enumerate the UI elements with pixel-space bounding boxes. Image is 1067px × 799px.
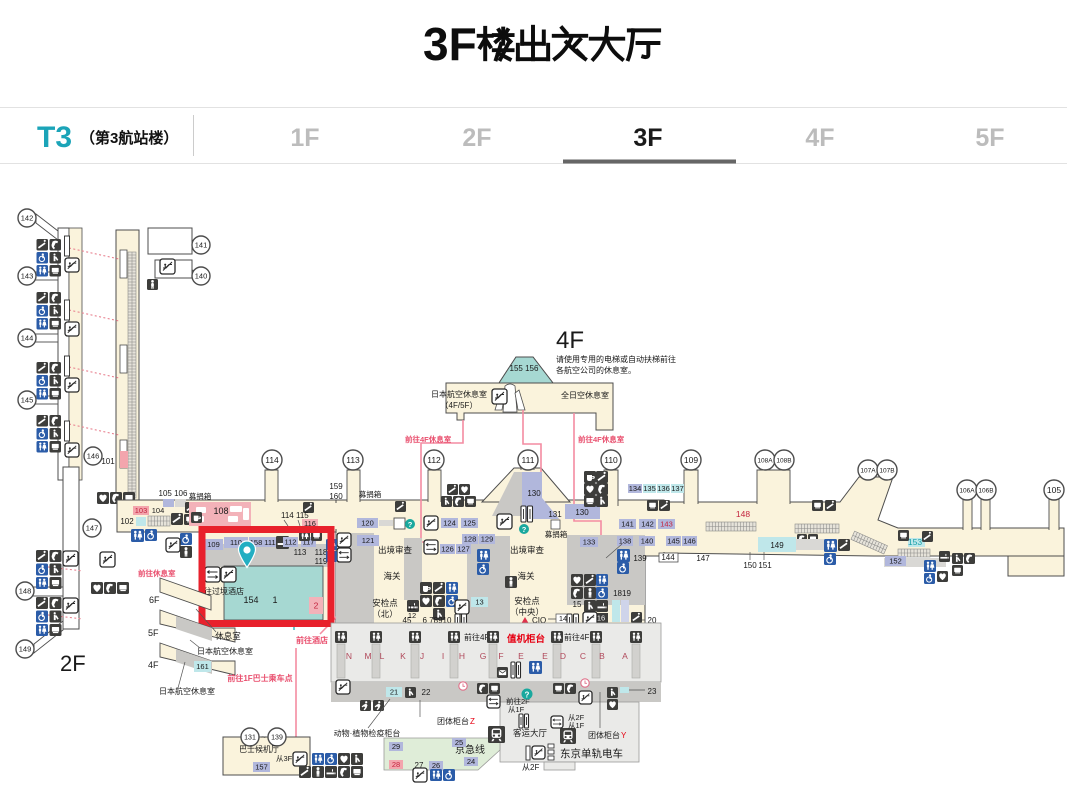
svg-text:142: 142 [641, 520, 654, 529]
svg-text:（4F/5F）: （4F/5F） [441, 401, 478, 410]
svg-text:135: 135 [643, 484, 656, 493]
svg-text:海关: 海关 [383, 571, 401, 581]
svg-text:4F: 4F [556, 327, 584, 354]
svg-text:值机柜台: 值机柜台 [507, 633, 546, 645]
svg-text:日本航空休息室: 日本航空休息室 [197, 646, 253, 656]
svg-text:160: 160 [329, 492, 343, 501]
svg-text:143: 143 [21, 272, 34, 281]
svg-text:130: 130 [527, 489, 541, 498]
svg-text:1819: 1819 [613, 589, 631, 598]
svg-text:138: 138 [619, 537, 632, 546]
svg-text:144: 144 [661, 553, 675, 562]
svg-text:团体柜台: 团体柜台 [588, 730, 620, 740]
svg-text:111: 111 [522, 455, 535, 465]
svg-text:26: 26 [432, 761, 440, 770]
svg-text:143: 143 [660, 520, 673, 529]
svg-text:安检点: 安检点 [514, 596, 540, 606]
svg-text:5F: 5F [148, 628, 159, 638]
svg-text:157: 157 [255, 763, 268, 772]
svg-text:146: 146 [683, 537, 696, 546]
svg-text:109: 109 [684, 455, 698, 465]
svg-text:I: I [442, 651, 444, 661]
svg-text:125: 125 [463, 519, 476, 528]
svg-text:148: 148 [736, 509, 750, 519]
svg-text:24: 24 [467, 757, 475, 766]
svg-text:休息室: 休息室 [215, 631, 241, 641]
svg-text:107A: 107A [860, 467, 876, 474]
svg-text:22: 22 [422, 688, 431, 697]
svg-text:103: 103 [135, 506, 148, 515]
svg-text:102: 102 [120, 517, 134, 526]
svg-text:募捐箱: 募捐箱 [189, 491, 212, 501]
svg-text:105: 105 [1047, 485, 1061, 495]
svg-text:101: 101 [101, 457, 115, 466]
svg-text:108B: 108B [776, 457, 791, 464]
svg-text:13: 13 [475, 598, 483, 607]
svg-text:131: 131 [548, 510, 562, 519]
svg-text:5F: 5F [975, 124, 1004, 152]
svg-text:146: 146 [87, 452, 100, 461]
svg-text:141: 141 [621, 520, 634, 529]
svg-text:?: ? [408, 520, 413, 529]
svg-text:2F: 2F [60, 651, 86, 676]
svg-text:21: 21 [390, 688, 398, 697]
svg-text:?: ? [522, 525, 527, 534]
svg-text:2: 2 [314, 601, 319, 611]
svg-text:从2F: 从2F [522, 763, 539, 772]
svg-text:前往休息室: 前往休息室 [138, 568, 176, 578]
svg-text:2F: 2F [462, 124, 491, 152]
svg-text:C: C [580, 651, 586, 661]
svg-text:日本航空休息室: 日本航空休息室 [159, 686, 215, 696]
svg-text:114: 114 [265, 455, 279, 465]
svg-text:前往4F: 前往4F [564, 632, 589, 642]
svg-text:113: 113 [346, 455, 360, 465]
svg-text:109: 109 [207, 540, 220, 549]
svg-text:23: 23 [648, 687, 657, 696]
svg-text:安检点: 安检点 [372, 598, 398, 608]
svg-text:全日空休息室: 全日空休息室 [561, 390, 609, 400]
svg-text:1: 1 [272, 595, 277, 605]
svg-text:25: 25 [455, 738, 463, 747]
svg-text:D: D [560, 651, 566, 661]
svg-text:3F: 3F [423, 18, 477, 70]
svg-text:前往4F休息室: 前往4F休息室 [405, 434, 452, 444]
svg-text:（第3航站楼）: （第3航站楼） [80, 129, 178, 147]
svg-text:154: 154 [243, 595, 258, 605]
svg-text:4F: 4F [805, 124, 834, 152]
svg-text:151: 151 [758, 561, 772, 570]
svg-text:29: 29 [392, 742, 400, 751]
svg-text:129: 129 [481, 535, 494, 544]
svg-text:A: A [622, 651, 628, 661]
svg-text:东京单轨电车: 东京单轨电车 [560, 747, 623, 760]
svg-text:28: 28 [392, 760, 400, 769]
svg-text:159: 159 [329, 482, 343, 491]
svg-text:从1F: 从1F [568, 721, 585, 730]
svg-text:募捐箱: 募捐箱 [359, 489, 382, 499]
svg-text:145: 145 [21, 396, 34, 405]
svg-text:110: 110 [604, 455, 618, 465]
svg-text:K: K [400, 651, 406, 661]
svg-text:153: 153 [908, 537, 922, 547]
svg-text:136: 136 [657, 484, 670, 493]
svg-text:L: L [380, 651, 385, 661]
svg-text:140: 140 [641, 537, 654, 546]
svg-text:F: F [498, 651, 503, 661]
svg-text:139: 139 [633, 554, 647, 563]
svg-text:133: 133 [583, 538, 596, 547]
svg-text:从1F: 从1F [508, 705, 525, 714]
svg-text:149: 149 [19, 645, 32, 654]
svg-text:日本航空休息室: 日本航空休息室 [431, 389, 487, 399]
svg-text:118: 118 [315, 548, 328, 557]
svg-text:往过境酒店: 往过境酒店 [204, 586, 244, 596]
svg-text:G: G [480, 651, 487, 661]
svg-text:?: ? [525, 691, 530, 700]
svg-text:前往酒店: 前往酒店 [296, 635, 328, 645]
svg-text:前往4F: 前往4F [464, 632, 489, 642]
svg-text:前往1F巴士乘车点: 前往1F巴士乘车点 [227, 673, 292, 683]
svg-text:113: 113 [294, 548, 307, 557]
svg-text:出境审查: 出境审查 [510, 545, 545, 555]
svg-text:12: 12 [408, 611, 416, 620]
svg-text:152: 152 [889, 557, 902, 566]
svg-text:112: 112 [285, 538, 297, 547]
svg-text:124: 124 [443, 519, 456, 528]
svg-text:140: 140 [195, 272, 208, 281]
svg-text:出境审查: 出境审查 [378, 545, 413, 555]
svg-text:144: 144 [21, 334, 34, 343]
svg-text:动物·植物检疫柜台: 动物·植物检疫柜台 [334, 728, 401, 738]
svg-text:105 106: 105 106 [159, 489, 188, 498]
svg-text:前往4F休息室: 前往4F休息室 [578, 434, 625, 444]
svg-text:148: 148 [19, 587, 32, 596]
svg-text:客运大厅: 客运大厅 [513, 728, 548, 738]
svg-text:106A: 106A [959, 487, 975, 494]
svg-text:N: N [346, 651, 352, 661]
svg-text:108: 108 [213, 506, 228, 516]
svg-text:104: 104 [152, 506, 165, 515]
svg-text:（北）: （北） [372, 609, 398, 619]
svg-text:139: 139 [271, 735, 283, 742]
svg-text:海关: 海关 [517, 571, 535, 581]
svg-text:111: 111 [264, 538, 275, 547]
svg-text:106B: 106B [978, 487, 993, 494]
svg-text:募捐箱: 募捐箱 [545, 529, 568, 539]
svg-text:120: 120 [361, 519, 374, 528]
svg-text:107B: 107B [879, 467, 894, 474]
svg-text:161: 161 [196, 662, 209, 671]
svg-text:128: 128 [464, 535, 477, 544]
svg-text:14: 14 [559, 614, 567, 623]
svg-text:16: 16 [597, 614, 605, 623]
svg-text:B: B [599, 651, 605, 661]
svg-text:112: 112 [427, 455, 441, 465]
svg-text:142: 142 [21, 214, 34, 223]
svg-text:4F: 4F [148, 660, 159, 670]
svg-text:各航空公司的休息室。: 各航空公司的休息室。 [556, 365, 636, 375]
svg-text:149: 149 [770, 541, 784, 550]
svg-text:130: 130 [575, 508, 589, 517]
svg-text:1F: 1F [290, 124, 319, 152]
svg-text:E: E [542, 651, 548, 661]
svg-text:147: 147 [86, 524, 99, 533]
svg-text:H: H [459, 651, 465, 661]
svg-text:126: 126 [441, 545, 454, 554]
svg-text:127: 127 [457, 545, 470, 554]
svg-text:147: 147 [696, 554, 710, 563]
svg-text:141: 141 [195, 241, 208, 250]
svg-text:155 156: 155 156 [510, 364, 539, 373]
svg-text:团体柜台: 团体柜台 [437, 716, 469, 726]
svg-text:3F: 3F [633, 124, 662, 152]
svg-text:J: J [420, 651, 424, 661]
svg-text:M: M [364, 651, 371, 661]
svg-text:15: 15 [573, 600, 582, 609]
svg-text:134: 134 [629, 484, 642, 493]
svg-text:T3: T3 [37, 121, 72, 154]
svg-text:145: 145 [667, 537, 680, 546]
svg-text:巴士候机厅: 巴士候机厅 [239, 744, 279, 754]
svg-text:6F: 6F [149, 595, 160, 605]
svg-text:108A: 108A [757, 457, 773, 464]
svg-text:请使用专用的电梯或自动扶梯前往: 请使用专用的电梯或自动扶梯前往 [556, 354, 676, 364]
svg-text:Y: Y [621, 731, 627, 740]
svg-text:从3F: 从3F [276, 754, 293, 763]
svg-text:119: 119 [315, 557, 328, 566]
svg-text:131: 131 [244, 735, 256, 742]
svg-text:E: E [518, 651, 524, 661]
svg-text:137: 137 [671, 484, 684, 493]
svg-text:Z: Z [470, 717, 475, 726]
svg-text:121: 121 [362, 536, 375, 545]
svg-text:~: ~ [261, 732, 266, 742]
svg-text:150: 150 [743, 561, 757, 570]
